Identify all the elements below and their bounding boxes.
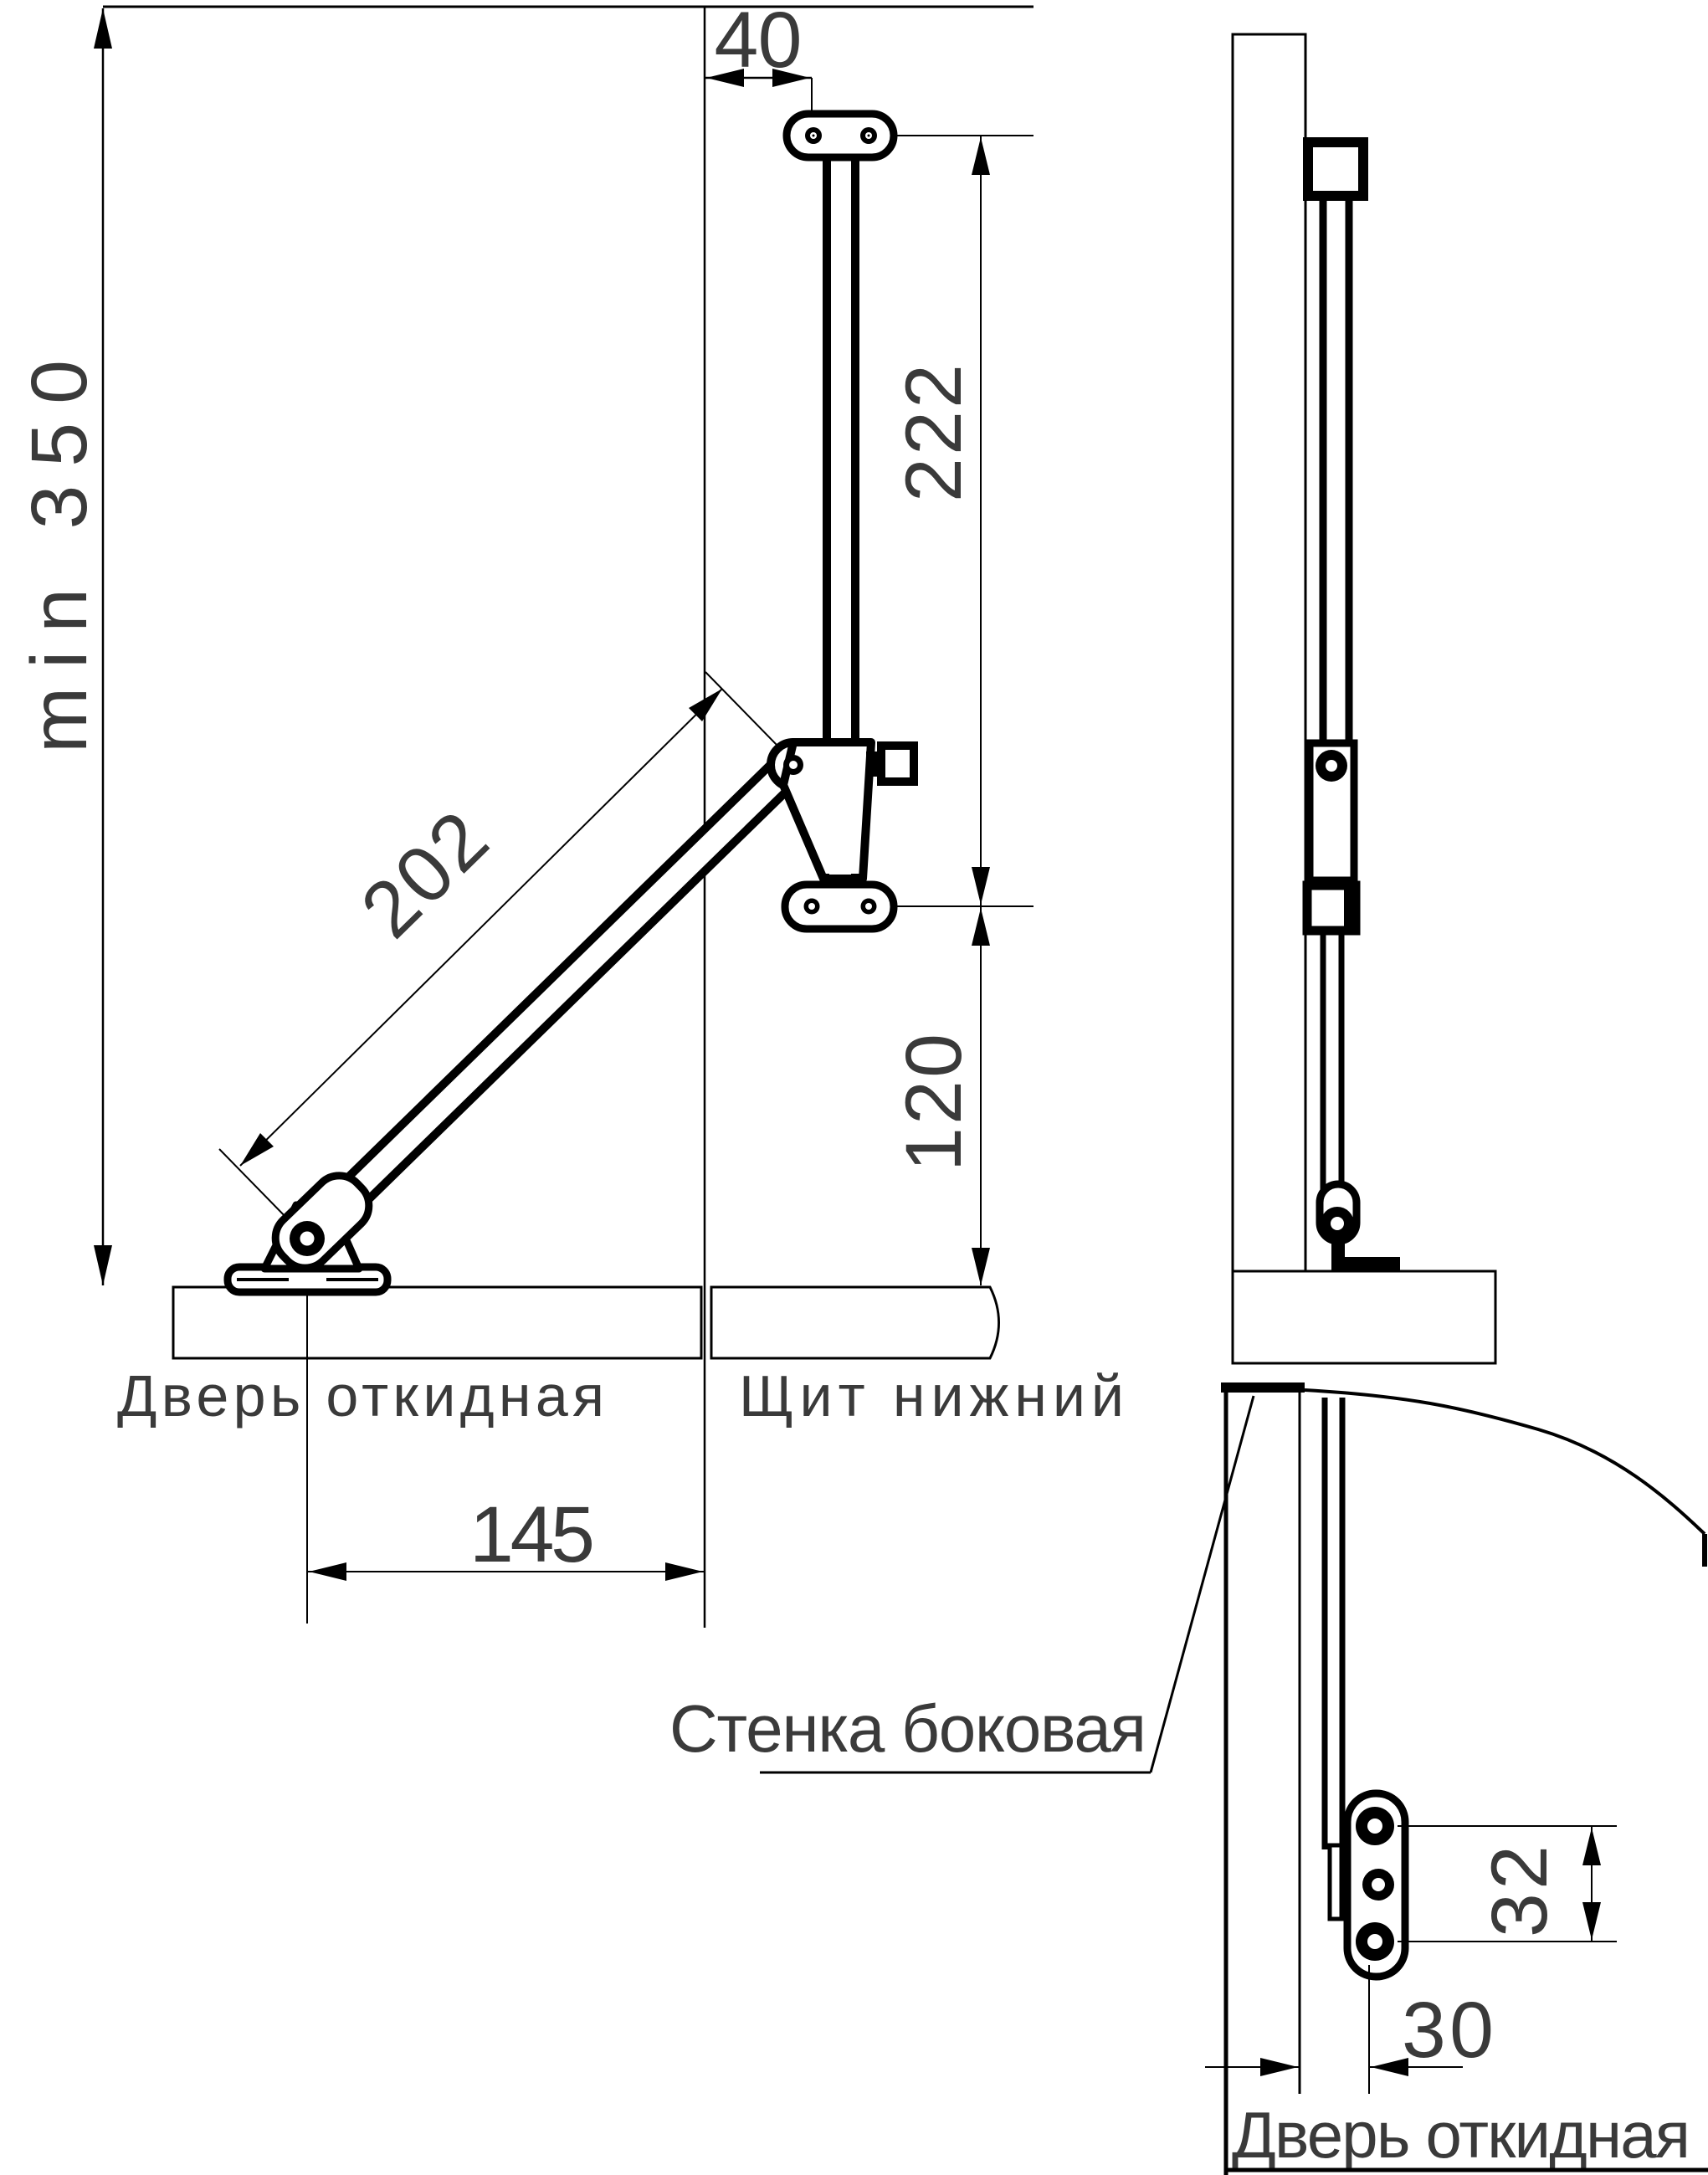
dim-min-350-value: min 350 — [15, 360, 104, 753]
stay-hardware-front — [228, 114, 914, 1292]
dim-145-value: 145 — [469, 1490, 595, 1579]
drawing-sheet: min 350 40 222 120 — [0, 0, 1708, 2175]
dim-222-value: 222 — [890, 364, 978, 502]
label-bottom-panel: Щит нижний — [739, 1363, 1124, 1429]
arrow-up-icon — [972, 137, 990, 175]
dim-30-value: 30 — [1402, 1986, 1494, 2075]
dimension-32: 32 — [1398, 1826, 1617, 1942]
arrow-up-icon — [94, 8, 112, 49]
adjust-knob — [881, 746, 914, 782]
flip-door-panel — [173, 1287, 701, 1358]
foot-horizontal — [1331, 1257, 1400, 1270]
detail-view: 32 30 Стенка боковая Дверь откидная — [669, 1388, 1708, 2175]
arrow-up-icon — [972, 908, 990, 946]
label-flip-door: Дверь откидная — [117, 1363, 604, 1429]
bottom-panel — [711, 1287, 999, 1358]
dimension-30: 30 — [1205, 1965, 1494, 2094]
break-line — [1305, 1390, 1705, 1534]
side-wall-panel — [1233, 34, 1305, 1271]
dimension-222-120: 222 120 — [885, 136, 1034, 1285]
arrow-down-icon — [972, 867, 990, 905]
top-mounting-plate — [787, 114, 894, 157]
side-wall-callout: Стенка боковая — [669, 1396, 1254, 1772]
arrow-down-icon — [1582, 1902, 1601, 1940]
dim-40-value: 40 — [715, 0, 803, 85]
label-flip-door-detail: Дверь откидная — [1232, 2098, 1690, 2172]
arrow-down-icon — [972, 1248, 990, 1285]
dimension-202: 202 — [219, 672, 778, 1223]
front-view: min 350 40 222 120 — [15, 0, 1124, 1628]
label-side-wall: Стенка боковая — [669, 1691, 1146, 1766]
dim-32-value: 32 — [1475, 1845, 1564, 1937]
arrow-up-icon — [1582, 1828, 1601, 1865]
arm-end-bracket — [1330, 1845, 1341, 1919]
leader-line — [1151, 1396, 1254, 1772]
arrow-down-icon — [94, 1245, 112, 1285]
dimension-min-350: min 350 — [15, 8, 112, 1285]
side-view — [1233, 34, 1495, 1363]
arrow-right-icon — [665, 1562, 703, 1581]
top-plate-side — [1308, 142, 1363, 196]
dim-202-value: 202 — [345, 795, 505, 955]
lower-mounting-plate — [785, 885, 894, 929]
door-slab-side — [1233, 1271, 1495, 1363]
arrow-left-icon — [309, 1562, 346, 1581]
arrow-right-icon — [1260, 2058, 1298, 2076]
dim-120-value: 120 — [890, 1034, 978, 1172]
